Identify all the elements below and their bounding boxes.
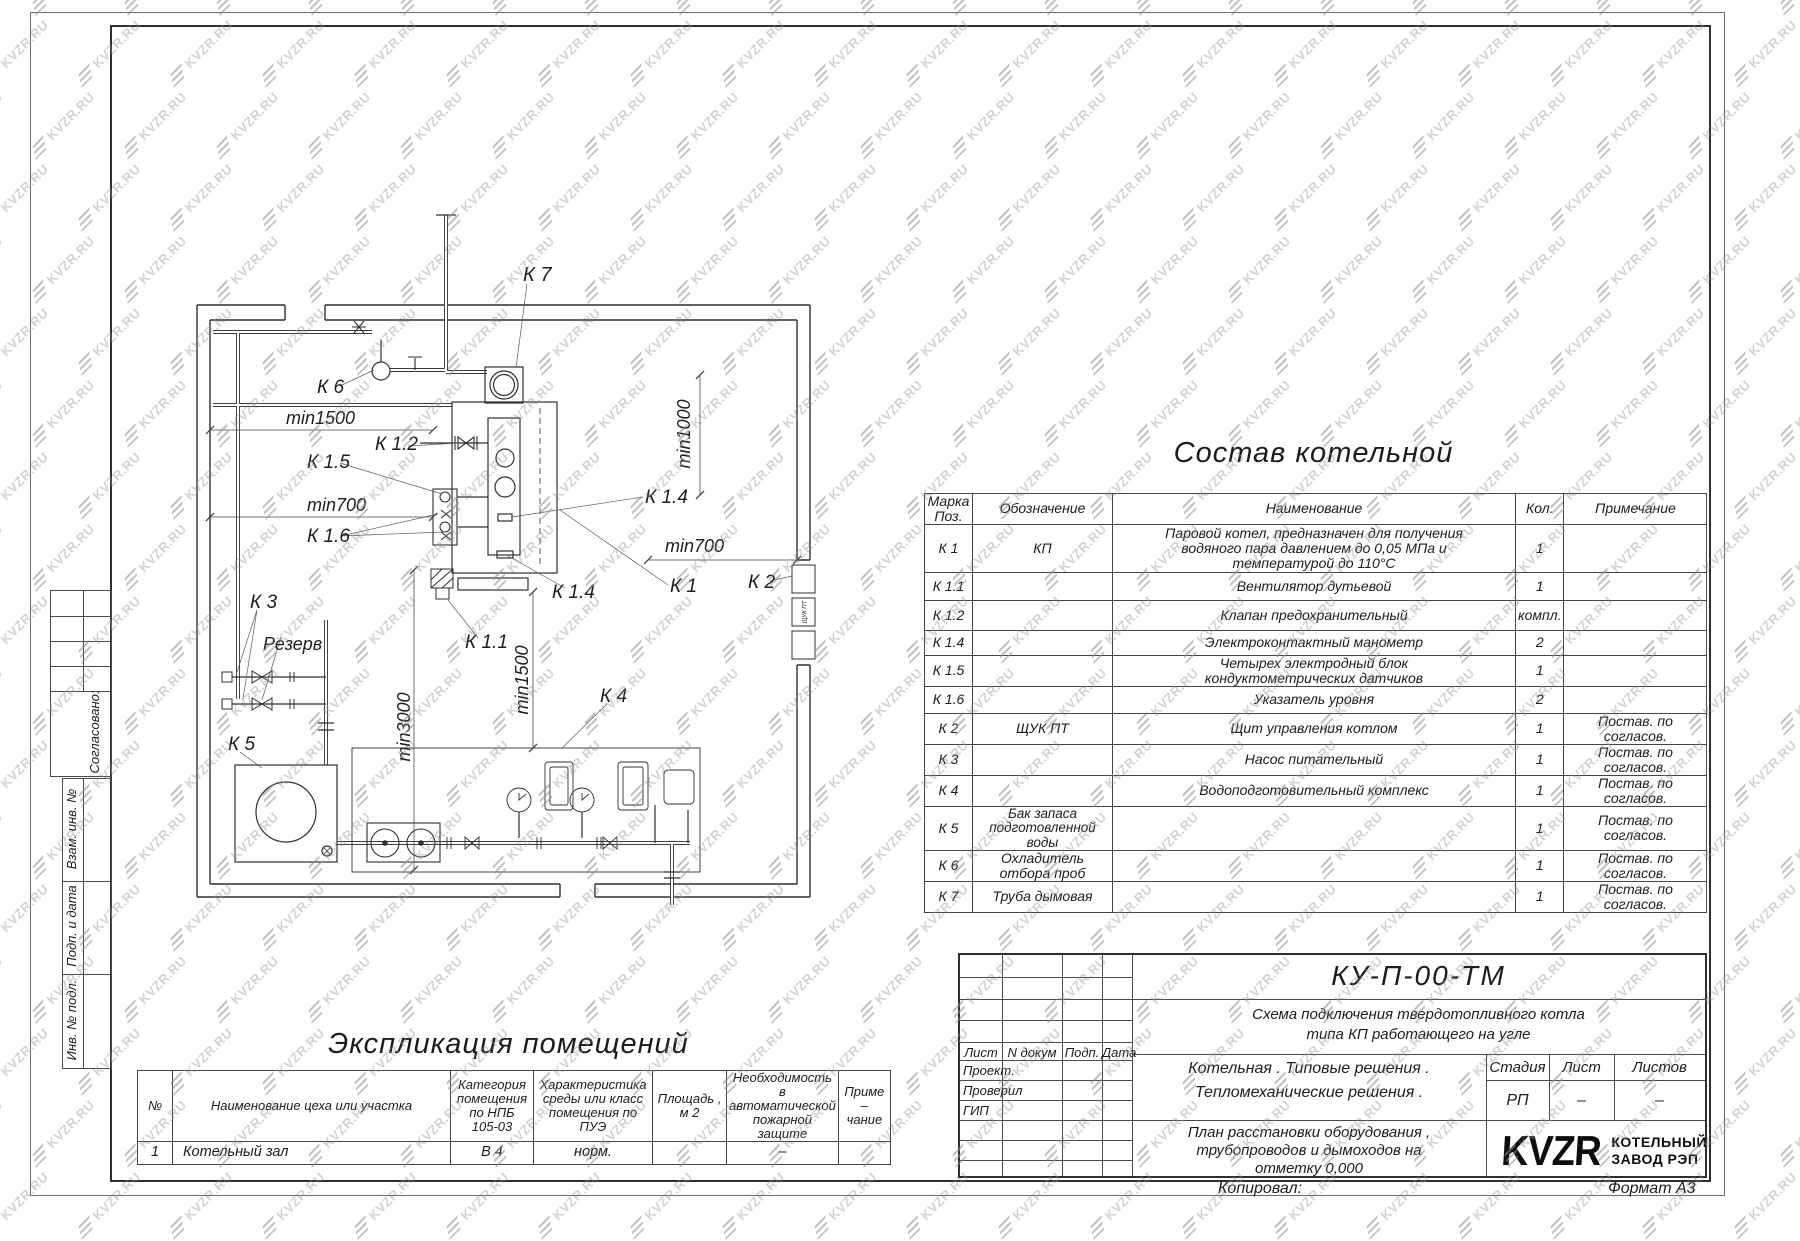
table-cell: К 1.1 xyxy=(925,572,973,600)
table-cell xyxy=(1564,686,1707,713)
plan-label-k7: К 7 xyxy=(523,264,552,286)
tank-k5 xyxy=(235,765,337,862)
table-cell: 2 xyxy=(1516,630,1564,655)
kvzr-watermark-icon xyxy=(1274,1215,1288,1241)
kvzr-watermark-icon xyxy=(1182,1215,1196,1241)
table-cell: 1 xyxy=(1516,881,1564,912)
kvzr-watermark-icon xyxy=(1458,1215,1472,1241)
table-cell xyxy=(653,1141,727,1164)
plan-label-k4: К 4 xyxy=(600,686,627,707)
table-cell xyxy=(973,600,1113,630)
plan-labels: К 7 К 6 min1500 К 1.2 К 1.5 min700 К 1.6… xyxy=(228,264,775,762)
plan-label-k12: К 1.2 xyxy=(375,434,418,455)
plan-label-min700-left: min700 xyxy=(307,495,366,515)
table-header-cell: Кол. xyxy=(1516,494,1564,525)
table-header-cell: № xyxy=(138,1071,173,1142)
table-cell: КП xyxy=(973,524,1113,572)
table-cell: Клапан предохранительный xyxy=(1113,600,1516,630)
table-cell xyxy=(1564,630,1707,655)
table-cell xyxy=(838,1141,890,1164)
table-cell: компл. xyxy=(1516,600,1564,630)
table-cell xyxy=(973,686,1113,713)
plan-label-rezerv: Резерв xyxy=(263,634,322,654)
table-cell: В 4 xyxy=(451,1141,534,1164)
plan-label-k15: К 1.5 xyxy=(307,452,350,473)
table-cell: 2 xyxy=(1516,686,1564,713)
table-cell xyxy=(973,630,1113,655)
table-cell xyxy=(1564,600,1707,630)
plan-label-min1500-top: min1500 xyxy=(286,408,355,428)
table-cell xyxy=(1113,881,1516,912)
kvzr-watermark-icon xyxy=(814,1215,828,1241)
plan-label-min1500-vert: min1500 xyxy=(512,645,532,714)
table-cell xyxy=(1113,851,1516,882)
plan-label-k1: К 1 xyxy=(670,576,697,597)
plan-label-min3000: min3000 xyxy=(394,692,414,761)
table-header-cell: Наименование цеха или участка xyxy=(173,1071,451,1142)
table-cell: К 6 xyxy=(925,851,973,882)
table-cell xyxy=(1564,572,1707,600)
plan-label-k6: К 6 xyxy=(317,377,344,398)
table-cell: Вентилятор дутьевой xyxy=(1113,572,1516,600)
table-cell: Щит управления котлом xyxy=(1113,713,1516,744)
kvzr-watermark-icon xyxy=(1090,1215,1104,1241)
table-header-cell: Характеристика среды или класс помещения… xyxy=(534,1071,653,1142)
cabinet-label: ЩУК ПТ xyxy=(803,599,809,623)
table-cell: К 1.6 xyxy=(925,686,973,713)
thin-pipes xyxy=(232,215,688,878)
table-cell: Четырех электродный блок кондуктометриче… xyxy=(1113,655,1516,686)
kvzr-watermark-icon xyxy=(538,1215,552,1241)
instrument-panel xyxy=(433,489,457,545)
plan-label-k2: К 2 xyxy=(748,572,775,593)
table-header-cell: Примечание xyxy=(1564,494,1707,525)
room-walls xyxy=(197,305,810,897)
table-header-cell: Приме – чание xyxy=(838,1071,890,1142)
table-cell: Водоподготовительный комплекс xyxy=(1113,775,1516,806)
table-cell: К 1.2 xyxy=(925,600,973,630)
skid-k4 xyxy=(352,748,700,872)
table-cell xyxy=(973,775,1113,806)
table-cell: Постав. по согласов. xyxy=(1564,881,1707,912)
table-cell xyxy=(1564,524,1707,572)
table-cell: Постав. по согласов. xyxy=(1564,713,1707,744)
table-cell: 1 xyxy=(1516,713,1564,744)
table-cell: К 2 xyxy=(925,713,973,744)
boiler-k1 xyxy=(452,367,557,590)
explication-table-title: Экспликация помещений xyxy=(137,1028,880,1061)
kvzr-watermark-icon xyxy=(1366,1215,1380,1241)
table-cell: Охладитель отбора проб xyxy=(973,851,1113,882)
table-cell: 1 xyxy=(1516,572,1564,600)
table-header-cell: Площадь , м 2 xyxy=(653,1071,727,1142)
table-cell: 1 xyxy=(1516,806,1564,850)
table-cell xyxy=(973,744,1113,775)
table-cell: Постав. по согласов. xyxy=(1564,775,1707,806)
plan-label-k16: К 1.6 xyxy=(307,526,350,547)
kvzr-watermark-icon xyxy=(1734,1215,1748,1241)
dimension-lines xyxy=(206,371,801,874)
table-header-cell: Необходимость в автоматической пожарной … xyxy=(727,1071,839,1142)
plan-label-min700-right: min700 xyxy=(665,536,724,556)
table-cell: К 1.4 xyxy=(925,630,973,655)
explication-table: №Наименование цеха или участкаКатегория … xyxy=(137,1070,891,1165)
table-header-cell: Обозначение xyxy=(973,494,1113,525)
kvzr-watermark-icon xyxy=(1642,1215,1656,1241)
table-cell: 1 xyxy=(1516,655,1564,686)
kvzr-watermark-icon xyxy=(354,1215,368,1241)
table-cell: Постав. по согласов. xyxy=(1564,744,1707,775)
kvzr-watermark-icon xyxy=(262,1215,276,1241)
table-cell: Постав. по согласов. xyxy=(1564,851,1707,882)
table-cell: Бак запаса подготовленной воды xyxy=(973,806,1113,850)
kvzr-watermark-icon xyxy=(78,1215,92,1241)
table-cell: Электроконтактный манометр xyxy=(1113,630,1516,655)
table-cell: 1 xyxy=(138,1141,173,1164)
table-cell: 1 xyxy=(1516,851,1564,882)
table-cell: К 1.5 xyxy=(925,655,973,686)
kvzr-watermark-icon xyxy=(170,1215,184,1241)
kvzr-watermark-icon xyxy=(1550,1215,1564,1241)
table-header-cell: Марка Поз. xyxy=(925,494,973,525)
table-cell: Указатель уровня xyxy=(1113,686,1516,713)
table-cell: 1 xyxy=(1516,524,1564,572)
plan-label-k5: К 5 xyxy=(228,734,255,755)
kvzr-watermark-icon xyxy=(722,1215,736,1241)
table-cell: К 5 xyxy=(925,806,973,850)
kvzr-watermark-icon xyxy=(446,1215,460,1241)
table-cell: К 3 xyxy=(925,744,973,775)
table-cell: К 7 xyxy=(925,881,973,912)
plan-label-k14-right: К 1.4 xyxy=(645,487,688,508)
kvzr-watermark-icon xyxy=(630,1215,644,1241)
table-cell: Постав. по согласов. xyxy=(1564,806,1707,850)
equipment-table: Марка Поз.ОбозначениеНаименованиеКол.При… xyxy=(924,493,1707,913)
explication-table-wrap: №Наименование цеха или участкаКатегория … xyxy=(137,1070,891,1165)
table-cell: Паровой котел, предназначен для получени… xyxy=(1113,524,1516,572)
table-cell: Котельный зал xyxy=(173,1141,451,1164)
table-cell xyxy=(1113,806,1516,850)
table-header-cell: Категория помещения по НПБ 105-03 xyxy=(451,1071,534,1142)
table-cell: норм. xyxy=(534,1141,653,1164)
table-cell: ЩУК ПТ xyxy=(973,713,1113,744)
valve-k12 xyxy=(352,321,477,450)
sampler-k6 xyxy=(372,362,390,380)
equipment-table-wrap: Марка Поз.ОбозначениеНаименованиеКол.При… xyxy=(924,493,1707,913)
kvzr-watermark-icon xyxy=(906,1215,920,1241)
table-cell: 1 xyxy=(1516,775,1564,806)
table-cell: – xyxy=(727,1141,839,1164)
table-cell: 1 xyxy=(1516,744,1564,775)
table-cell xyxy=(1564,655,1707,686)
table-header-cell: Наименование xyxy=(1113,494,1516,525)
blower-k11 xyxy=(431,569,453,599)
plan-label-k11: К 1.1 xyxy=(465,632,508,653)
table-cell: К 4 xyxy=(925,775,973,806)
table-cell: Насос питательный xyxy=(1113,744,1516,775)
table-cell: К 1 xyxy=(925,524,973,572)
plan-label-k3: К 3 xyxy=(250,592,277,613)
table-cell: Труба дымовая xyxy=(973,881,1113,912)
plan-label-k14-bottom: К 1.4 xyxy=(552,582,595,603)
equipment-table-title: Состав котельной xyxy=(924,437,1703,470)
kvzr-watermark-icon xyxy=(998,1215,1012,1241)
table-cell xyxy=(973,655,1113,686)
plan-label-min1000: min1000 xyxy=(674,399,694,468)
table-cell xyxy=(973,572,1113,600)
